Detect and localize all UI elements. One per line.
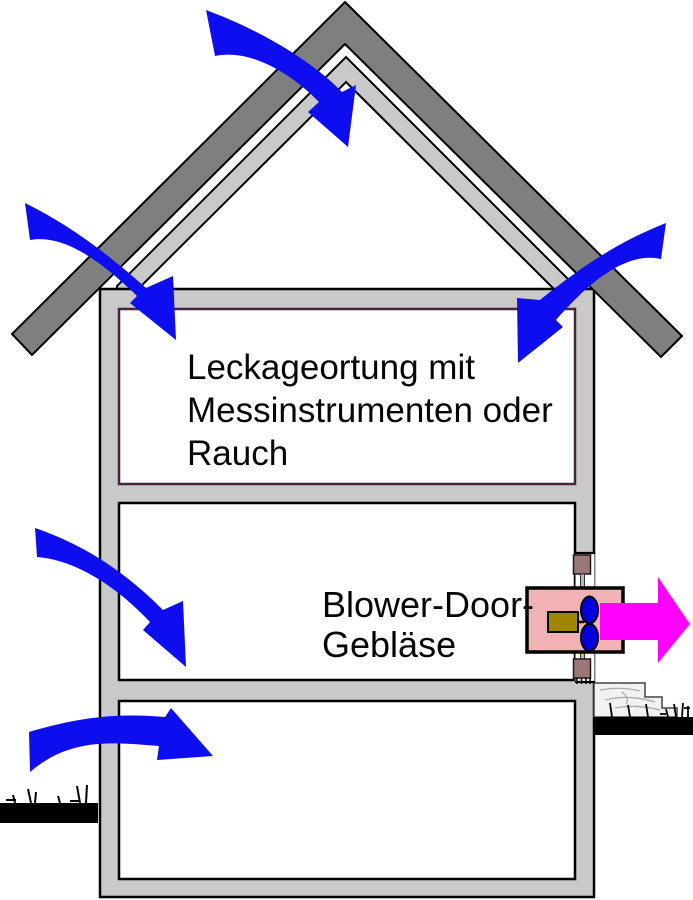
- attic-room-label: Leckageortung mit Messinstrumenten oder …: [187, 346, 553, 475]
- grass-left: [6, 785, 87, 803]
- blower-door-test-diagram: Leckageortung mit Messinstrumenten oder …: [0, 0, 693, 900]
- fan-label-line1: Blower-Door-: [322, 585, 534, 625]
- blower-door-frame-bottom: [574, 659, 591, 678]
- attic-room-label-line3: Rauch: [187, 432, 553, 475]
- ground-right: [594, 717, 693, 735]
- attic-room-label-line2: Messinstrumenten oder: [187, 389, 553, 432]
- blower-door-frame-top: [574, 555, 591, 574]
- fan-blade-bottom: [581, 624, 598, 651]
- fan-motor: [548, 612, 578, 632]
- fan-blade-top: [581, 597, 598, 624]
- fan-label: Blower-Door- Gebläse: [322, 585, 534, 665]
- fan-label-line2: Gebläse: [322, 625, 534, 665]
- ground-left: [0, 803, 98, 823]
- attic-room-label-line1: Leckageortung mit: [187, 346, 553, 389]
